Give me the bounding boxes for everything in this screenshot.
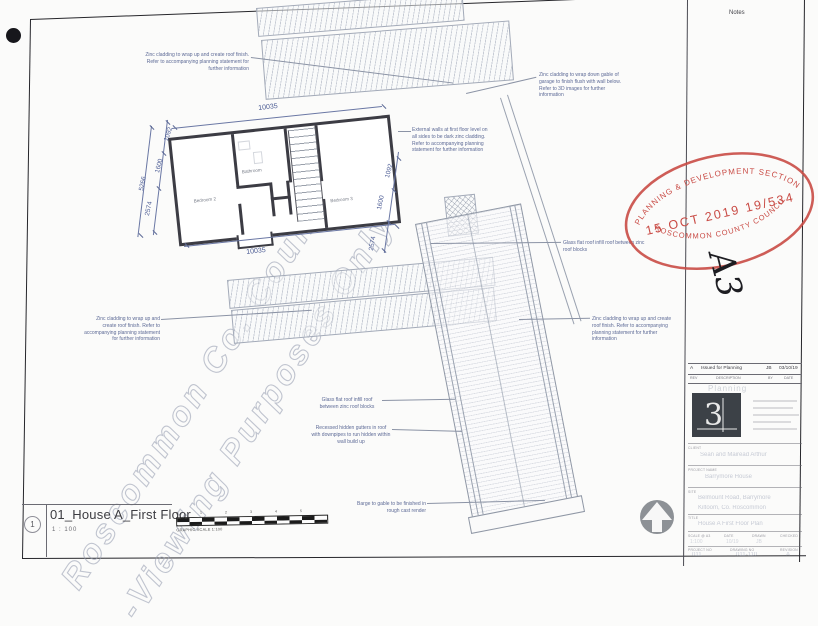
- annotation-zinc-gable: Zinc cladding to wrap down gable of gara…: [539, 72, 631, 99]
- scale-bar-label: GRAPHIC SCALE 1:100: [176, 527, 222, 533]
- dim-tick: [139, 233, 144, 238]
- annotation-gutters: Recessed hidden gutters in roof with dow…: [311, 425, 391, 445]
- scale-tick: 0: [176, 511, 178, 515]
- drawing-title: House A First Floor Plan: [698, 521, 763, 527]
- annotation-external-walls: External walls at first floor level on a…: [412, 127, 492, 154]
- annotation-zinc-top-left: Zinc cladding to wrap up and create roof…: [143, 52, 249, 72]
- drawn-label: DRAWN: [752, 534, 766, 538]
- address-line: [753, 400, 797, 402]
- bathroom-fixture: [253, 151, 263, 164]
- tb-rule: [688, 514, 802, 515]
- title-strip-rule: [22, 504, 172, 505]
- bathroom-wall: [236, 183, 270, 189]
- rev-header-description: DESCRIPTION: [716, 376, 741, 380]
- date-label: DATE: [724, 534, 734, 538]
- revision-value: A: [786, 552, 790, 558]
- roof-edge-line: [509, 206, 567, 501]
- garage-wing-roof-plan: [415, 203, 579, 520]
- sheet-frame-bottom: [22, 555, 806, 559]
- scale-label: SCALE @ A3: [688, 534, 710, 538]
- client-name: Sean and Mairead Arthur: [700, 452, 767, 458]
- scale-bar-blocks: [176, 515, 328, 527]
- dim-left-overall: 5266: [138, 176, 148, 192]
- scale-tick: 4: [275, 510, 277, 514]
- client-label: CLIENT: [688, 446, 701, 450]
- project-label: PROJECT NAME: [688, 468, 717, 472]
- tb-rule: [688, 487, 802, 488]
- drawing-title-text: 01_House A_First Floor: [50, 507, 191, 522]
- rev-header-rev: REV: [690, 376, 697, 380]
- architect-logo: 3: [692, 393, 741, 437]
- checked-label: CHECKED: [780, 534, 798, 538]
- dim-top: 10035: [258, 103, 278, 112]
- site-address-1: Belmount Road, Barrymore: [698, 495, 771, 501]
- drawing-number-bubble: 1: [24, 516, 41, 533]
- site-address-2: Kiltoom, Co. Roscommon: [698, 505, 766, 511]
- tb-rule: [688, 546, 802, 547]
- staircase: [288, 127, 325, 221]
- sheet-frame-right: [799, 0, 805, 562]
- bathroom-fixture: [238, 140, 251, 150]
- north-arrow: [639, 499, 675, 540]
- drawing-title-label: TITLE: [688, 516, 698, 520]
- address-line: [753, 407, 793, 409]
- sheet-frame-left: [22, 19, 31, 559]
- date-value: 10/19: [726, 539, 739, 545]
- tb-rule: [688, 531, 802, 532]
- address-line: [753, 414, 799, 416]
- tb-rule: [688, 363, 802, 364]
- roof-ridge-line: [467, 215, 525, 510]
- partition-wall: [238, 204, 244, 237]
- drawing-scale-text: 1 : 100: [52, 527, 77, 533]
- room-label-bedroom2: Bedroom 2: [193, 196, 216, 203]
- tb-rule: [688, 374, 802, 375]
- leader-line: [382, 399, 455, 401]
- dim-left-2: 1600: [154, 158, 165, 174]
- scale-tick: 1: [200, 511, 202, 515]
- punch-hole-mark: [6, 28, 21, 43]
- dim-tick: [382, 104, 387, 109]
- annotation-barge: Barge to gable to be finished in rough c…: [348, 501, 426, 515]
- leader-line: [398, 131, 411, 132]
- scale-value: 1:100: [690, 539, 703, 545]
- roof-edge-line: [426, 223, 484, 518]
- drawing-no-value: 011-110: [736, 552, 757, 558]
- address-line: [753, 421, 791, 423]
- tb-rule: [688, 465, 802, 466]
- rev-description: Issued for Planning: [701, 366, 742, 371]
- project-no-value: 011: [692, 552, 702, 558]
- roof-edge-line: [421, 224, 479, 519]
- room-label-bedroom3: Bedroom 3: [330, 196, 353, 203]
- leader-line: [392, 429, 462, 432]
- address-line: [753, 428, 797, 430]
- site-label: SITE: [688, 490, 696, 494]
- notes-label: Notes: [729, 10, 745, 16]
- project-name: Barrymore House: [705, 474, 752, 480]
- scale-tick: 3: [250, 510, 252, 514]
- status-text: Planning: [708, 384, 747, 393]
- dim-left-3: 2574: [144, 201, 154, 217]
- rev-letter: A: [690, 366, 693, 371]
- rev-by: JB: [766, 366, 772, 371]
- drawn-value: JB: [756, 539, 762, 545]
- rev-header-date: DATE: [784, 376, 793, 380]
- scale-tick: 5: [300, 509, 302, 513]
- tb-rule: [688, 443, 802, 444]
- scale-tick: 2: [225, 510, 227, 514]
- rev-date: 03/10/19: [779, 366, 798, 371]
- title-strip-divider: [46, 504, 47, 557]
- annotation-zinc-left: Zinc cladding to wrap up and create roof…: [82, 316, 160, 343]
- logo-glyph: 3: [704, 398, 723, 433]
- rev-header-by: BY: [768, 376, 773, 380]
- room-label-bathroom: Bathroom: [242, 167, 262, 174]
- annotation-zinc-right: Zinc cladding to wrap up and create roof…: [592, 316, 674, 343]
- annotation-glass-roof-bottom: Glass flat roof infill roof between zinc…: [313, 397, 381, 411]
